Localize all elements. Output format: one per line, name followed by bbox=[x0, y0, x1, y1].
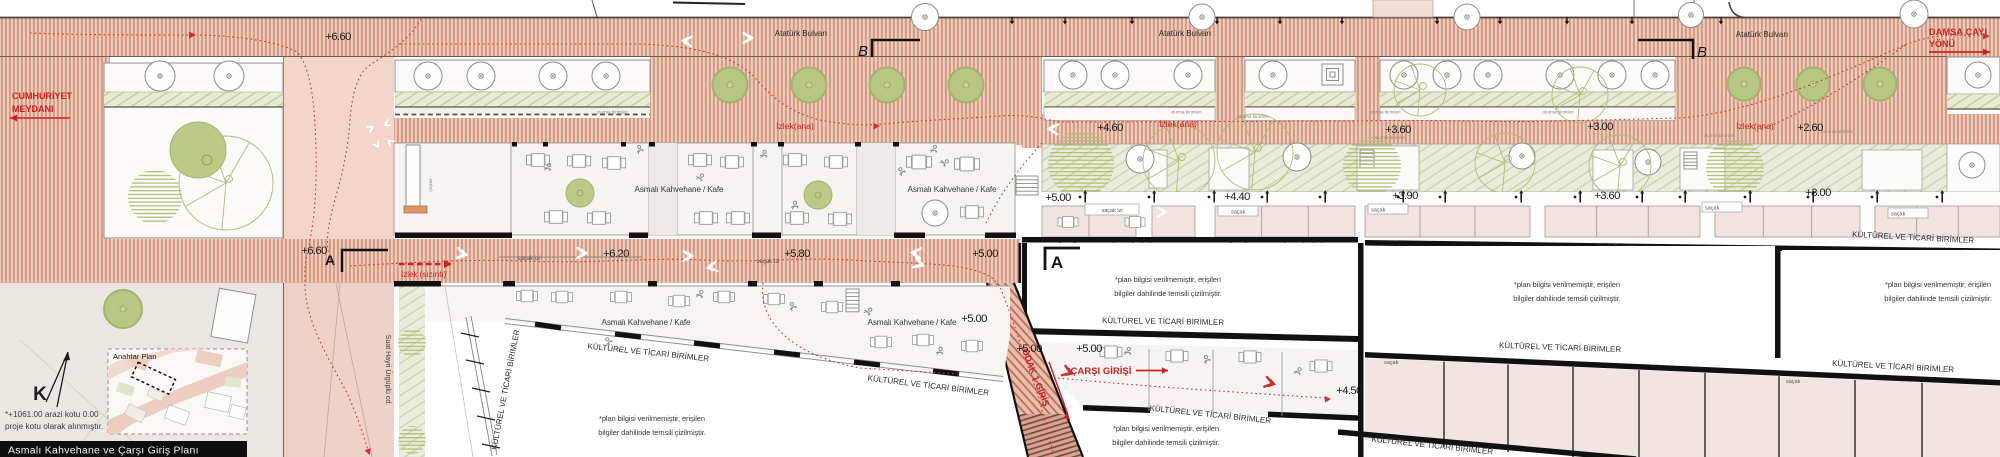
svg-text:Atatürk Bulvarı: Atatürk Bulvarı bbox=[775, 29, 827, 38]
svg-text:Suat Hayri Ürgüplü cd.: Suat Hayri Ürgüplü cd. bbox=[384, 335, 392, 405]
svg-text:ÇARŞI GİRİŞİ: ÇARŞI GİRİŞİ bbox=[1071, 366, 1132, 377]
svg-text:İzlek (sızıntı): İzlek (sızıntı) bbox=[401, 270, 447, 279]
svg-text:+5.00: +5.00 bbox=[1076, 343, 1102, 355]
svg-text:İzlek(ana): İzlek(ana) bbox=[776, 121, 814, 131]
svg-text:+6.60: +6.60 bbox=[301, 245, 327, 257]
svg-text:+4.50: +4.50 bbox=[1336, 385, 1362, 397]
svg-text:oturma birimleri: oturma birimleri bbox=[1237, 114, 1268, 119]
svg-text:Asmalı Kahvehane / Kafe: Asmalı Kahvehane / Kafe bbox=[635, 185, 725, 194]
svg-text:bilgiler dahilinde temsili çiz: bilgiler dahilinde temsili çizilmiştir. bbox=[1114, 289, 1221, 298]
svg-text:Asmalı Kahvehane ve Çarşı Giri: Asmalı Kahvehane ve Çarşı Giriş Planı bbox=[8, 445, 199, 457]
svg-text:+5.00: +5.00 bbox=[1016, 343, 1042, 355]
svg-text:saçak izi: saçak izi bbox=[1101, 208, 1122, 214]
svg-text:+3.00: +3.00 bbox=[1805, 187, 1831, 199]
svg-text:proje kotu olarak alınmıştır.: proje kotu olarak alınmıştır. bbox=[5, 422, 103, 431]
svg-text:Anahtar Plan: Anahtar Plan bbox=[113, 352, 156, 361]
svg-text:bilgiler dahilinde temsili çiz: bilgiler dahilinde temsili çizilmiştir. bbox=[598, 428, 705, 437]
svg-text:saçak izi: saçak izi bbox=[756, 259, 779, 265]
svg-text:oturma birimleri: oturma birimleri bbox=[1822, 129, 1853, 134]
svg-text:bilgiler dahilinde temsili çiz: bilgiler dahilinde temsili çizilmiştir. bbox=[1513, 294, 1620, 303]
svg-text:çeşme: çeşme bbox=[428, 178, 433, 192]
svg-text:oturma birimleri: oturma birimleri bbox=[596, 110, 627, 115]
svg-text:saçak: saçak bbox=[1705, 206, 1720, 212]
svg-text:+6.60: +6.60 bbox=[325, 31, 351, 43]
svg-text:oturma birimleri: oturma birimleri bbox=[1369, 110, 1400, 115]
svg-text:Atatürk Bulvarı: Atatürk Bulvarı bbox=[1736, 30, 1788, 39]
svg-text:oturma birimleri: oturma birimleri bbox=[1170, 110, 1201, 115]
svg-text:saçak: saçak bbox=[1384, 360, 1399, 366]
svg-text:B: B bbox=[858, 43, 868, 60]
svg-text:bilgiler dahilinde temsili çiz: bilgiler dahilinde temsili çizilmiştir. bbox=[1112, 438, 1219, 447]
svg-text:Atatürk Bulvarı: Atatürk Bulvarı bbox=[1159, 29, 1211, 38]
svg-text:İzlek(ana): İzlek(ana) bbox=[1159, 119, 1197, 129]
svg-text:A: A bbox=[1051, 253, 1063, 272]
svg-text:Asmalı Kahvehane / Kafe: Asmalı Kahvehane / Kafe bbox=[908, 185, 998, 194]
svg-text:+5.80: +5.80 bbox=[784, 248, 810, 260]
svg-text:+5.00: +5.00 bbox=[961, 313, 987, 325]
svg-text:+4.60: +4.60 bbox=[1097, 122, 1123, 134]
svg-text:saçak: saçak bbox=[1786, 379, 1801, 385]
svg-text:Asmalı Kahvehane / Kafe: Asmalı Kahvehane / Kafe bbox=[602, 318, 692, 327]
svg-text:CUMHURİYET: CUMHURİYET bbox=[12, 91, 73, 101]
svg-text:+5.00: +5.00 bbox=[1045, 192, 1071, 204]
svg-text:*plan bilgisi verilmemiştir, e: *plan bilgisi verilmemiştir, erişilen bbox=[1514, 280, 1620, 289]
svg-text:*plan bilgisi verilmemiştir, e: *plan bilgisi verilmemiştir, erişilen bbox=[599, 414, 705, 423]
svg-text:saçak: saçak bbox=[1891, 212, 1906, 218]
svg-text:bilgiler dahilinde temsili çiz: bilgiler dahilinde temsili çizilmiştir. bbox=[1884, 294, 1991, 303]
svg-text:MEYDANI: MEYDANI bbox=[12, 104, 54, 114]
svg-text:oturma birimleri: oturma birimleri bbox=[1703, 133, 1734, 138]
svg-text:İzlek(ana): İzlek(ana) bbox=[1736, 121, 1774, 131]
svg-text:saçak: saçak bbox=[1231, 210, 1246, 216]
svg-text:+3.00: +3.00 bbox=[1587, 121, 1613, 133]
svg-text:*plan bilgisi verilmemiştir, e: *plan bilgisi verilmemiştir, erişilen bbox=[1885, 280, 1991, 289]
svg-text:saçak: saçak bbox=[1371, 208, 1386, 214]
svg-text:+3.90: +3.90 bbox=[1392, 190, 1418, 202]
svg-text:+2.60: +2.60 bbox=[1797, 122, 1823, 134]
svg-text:oturma birimleri: oturma birimleri bbox=[1374, 135, 1405, 140]
svg-text:B: B bbox=[1697, 44, 1707, 61]
svg-text:*plan bilgisi verilmemiştir, e: *plan bilgisi verilmemiştir, erişilen bbox=[1115, 275, 1221, 284]
svg-text:*plan bilgisi verilmemiştir, e: *plan bilgisi verilmemiştir, erişilen bbox=[1113, 424, 1219, 433]
svg-text:YÖNÜ: YÖNÜ bbox=[1929, 39, 1955, 49]
svg-text:+3.60: +3.60 bbox=[1594, 190, 1620, 202]
svg-text:+6.20: +6.20 bbox=[603, 248, 629, 260]
svg-text:*+1061.00 arazi kotu 0.00: *+1061.00 arazi kotu 0.00 bbox=[5, 410, 99, 419]
svg-text:K: K bbox=[33, 384, 47, 405]
svg-text:Asmalı Kahvehane / Kafe: Asmalı Kahvehane / Kafe bbox=[868, 318, 958, 327]
svg-text:+4.40: +4.40 bbox=[1224, 191, 1250, 203]
svg-text:+5.00: +5.00 bbox=[972, 248, 998, 260]
